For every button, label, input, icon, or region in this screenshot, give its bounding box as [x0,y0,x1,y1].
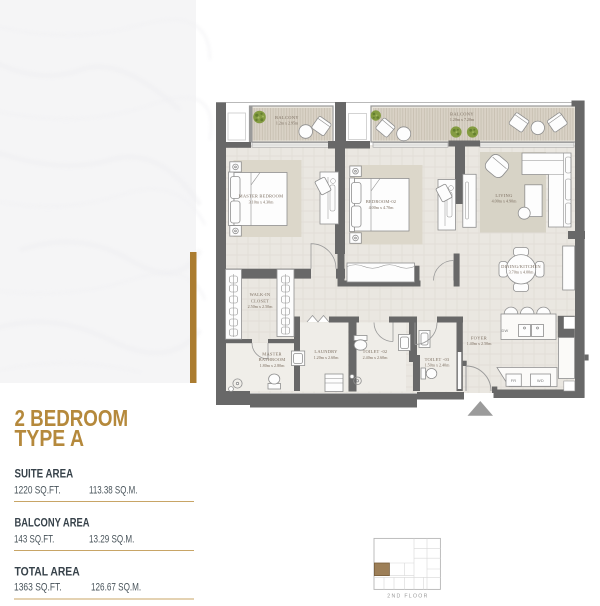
svg-text:2ND FLOOR: 2ND FLOOR [387,594,428,600]
svg-text:LIVING: LIVING [495,193,513,198]
svg-text:126.67 SQ.M.: 126.67 SQ.M. [91,582,141,594]
svg-text:MASTER: MASTER [262,352,281,357]
svg-text:1.40m x 2.50m: 1.40m x 2.50m [467,341,493,346]
svg-text:TOILET -03: TOILET -03 [425,357,450,362]
svg-text:SUITE AREA: SUITE AREA [15,467,74,481]
svg-text:1.80m x 2.80m: 1.80m x 2.80m [260,363,286,368]
svg-text:FR: FR [511,378,517,383]
svg-text:BALCONY: BALCONY [450,112,474,117]
svg-text:CLOSET: CLOSET [251,298,269,303]
svg-text:FOYER: FOYER [471,336,487,341]
svg-text:1220 SQ.FT.: 1220 SQ.FT. [14,485,61,497]
svg-text:WALK-IN: WALK-IN [250,292,271,297]
svg-text:143 SQ.FT.: 143 SQ.FT. [14,534,54,546]
svg-text:BALCONY: BALCONY [275,115,299,120]
svg-text:1363 SQ.FT.: 1363 SQ.FT. [14,582,62,594]
svg-text:4.00m x 4.70m: 4.00m x 4.70m [369,205,395,210]
svg-text:TOTAL AREA: TOTAL AREA [15,565,80,579]
svg-text:3.70m x 4.00m: 3.70m x 4.00m [509,270,535,275]
svg-text:1.2m x 2.95m: 1.2m x 2.95m [276,121,299,126]
svg-text:WD: WD [537,378,544,383]
svg-text:113.38 SQ.M.: 113.38 SQ.M. [89,485,137,497]
svg-text:13.29 SQ.M.: 13.29 SQ.M. [89,534,134,546]
svg-text:2.50m x 2.50m: 2.50m x 2.50m [248,304,274,309]
svg-text:LAUNDRY: LAUNDRY [314,349,338,354]
svg-text:1.50m x 2.40m: 1.50m x 2.40m [425,363,451,368]
svg-text:1.20m x 2.60m: 1.20m x 2.60m [314,355,340,360]
svg-text:3.10m x 4.30m: 3.10m x 4.30m [249,200,275,205]
svg-text:DINING/KITCHEN: DINING/KITCHEN [501,264,541,269]
svg-text:TYPE A: TYPE A [15,425,85,451]
svg-text:1.20m x 7.20m: 1.20m x 7.20m [450,117,475,122]
svg-text:4.00m x 4.90m: 4.00m x 4.90m [492,199,518,204]
svg-text:DW: DW [502,328,509,333]
svg-text:BATHROOM: BATHROOM [259,357,286,362]
svg-text:TOILET -02: TOILET -02 [363,349,388,354]
svg-text:BEDROOM-02: BEDROOM-02 [366,199,397,204]
svg-text:MASTER BEDROOM: MASTER BEDROOM [239,194,284,199]
svg-text:BALCONY AREA: BALCONY AREA [15,516,90,530]
svg-text:2.40m x 2.60m: 2.40m x 2.60m [363,355,389,360]
